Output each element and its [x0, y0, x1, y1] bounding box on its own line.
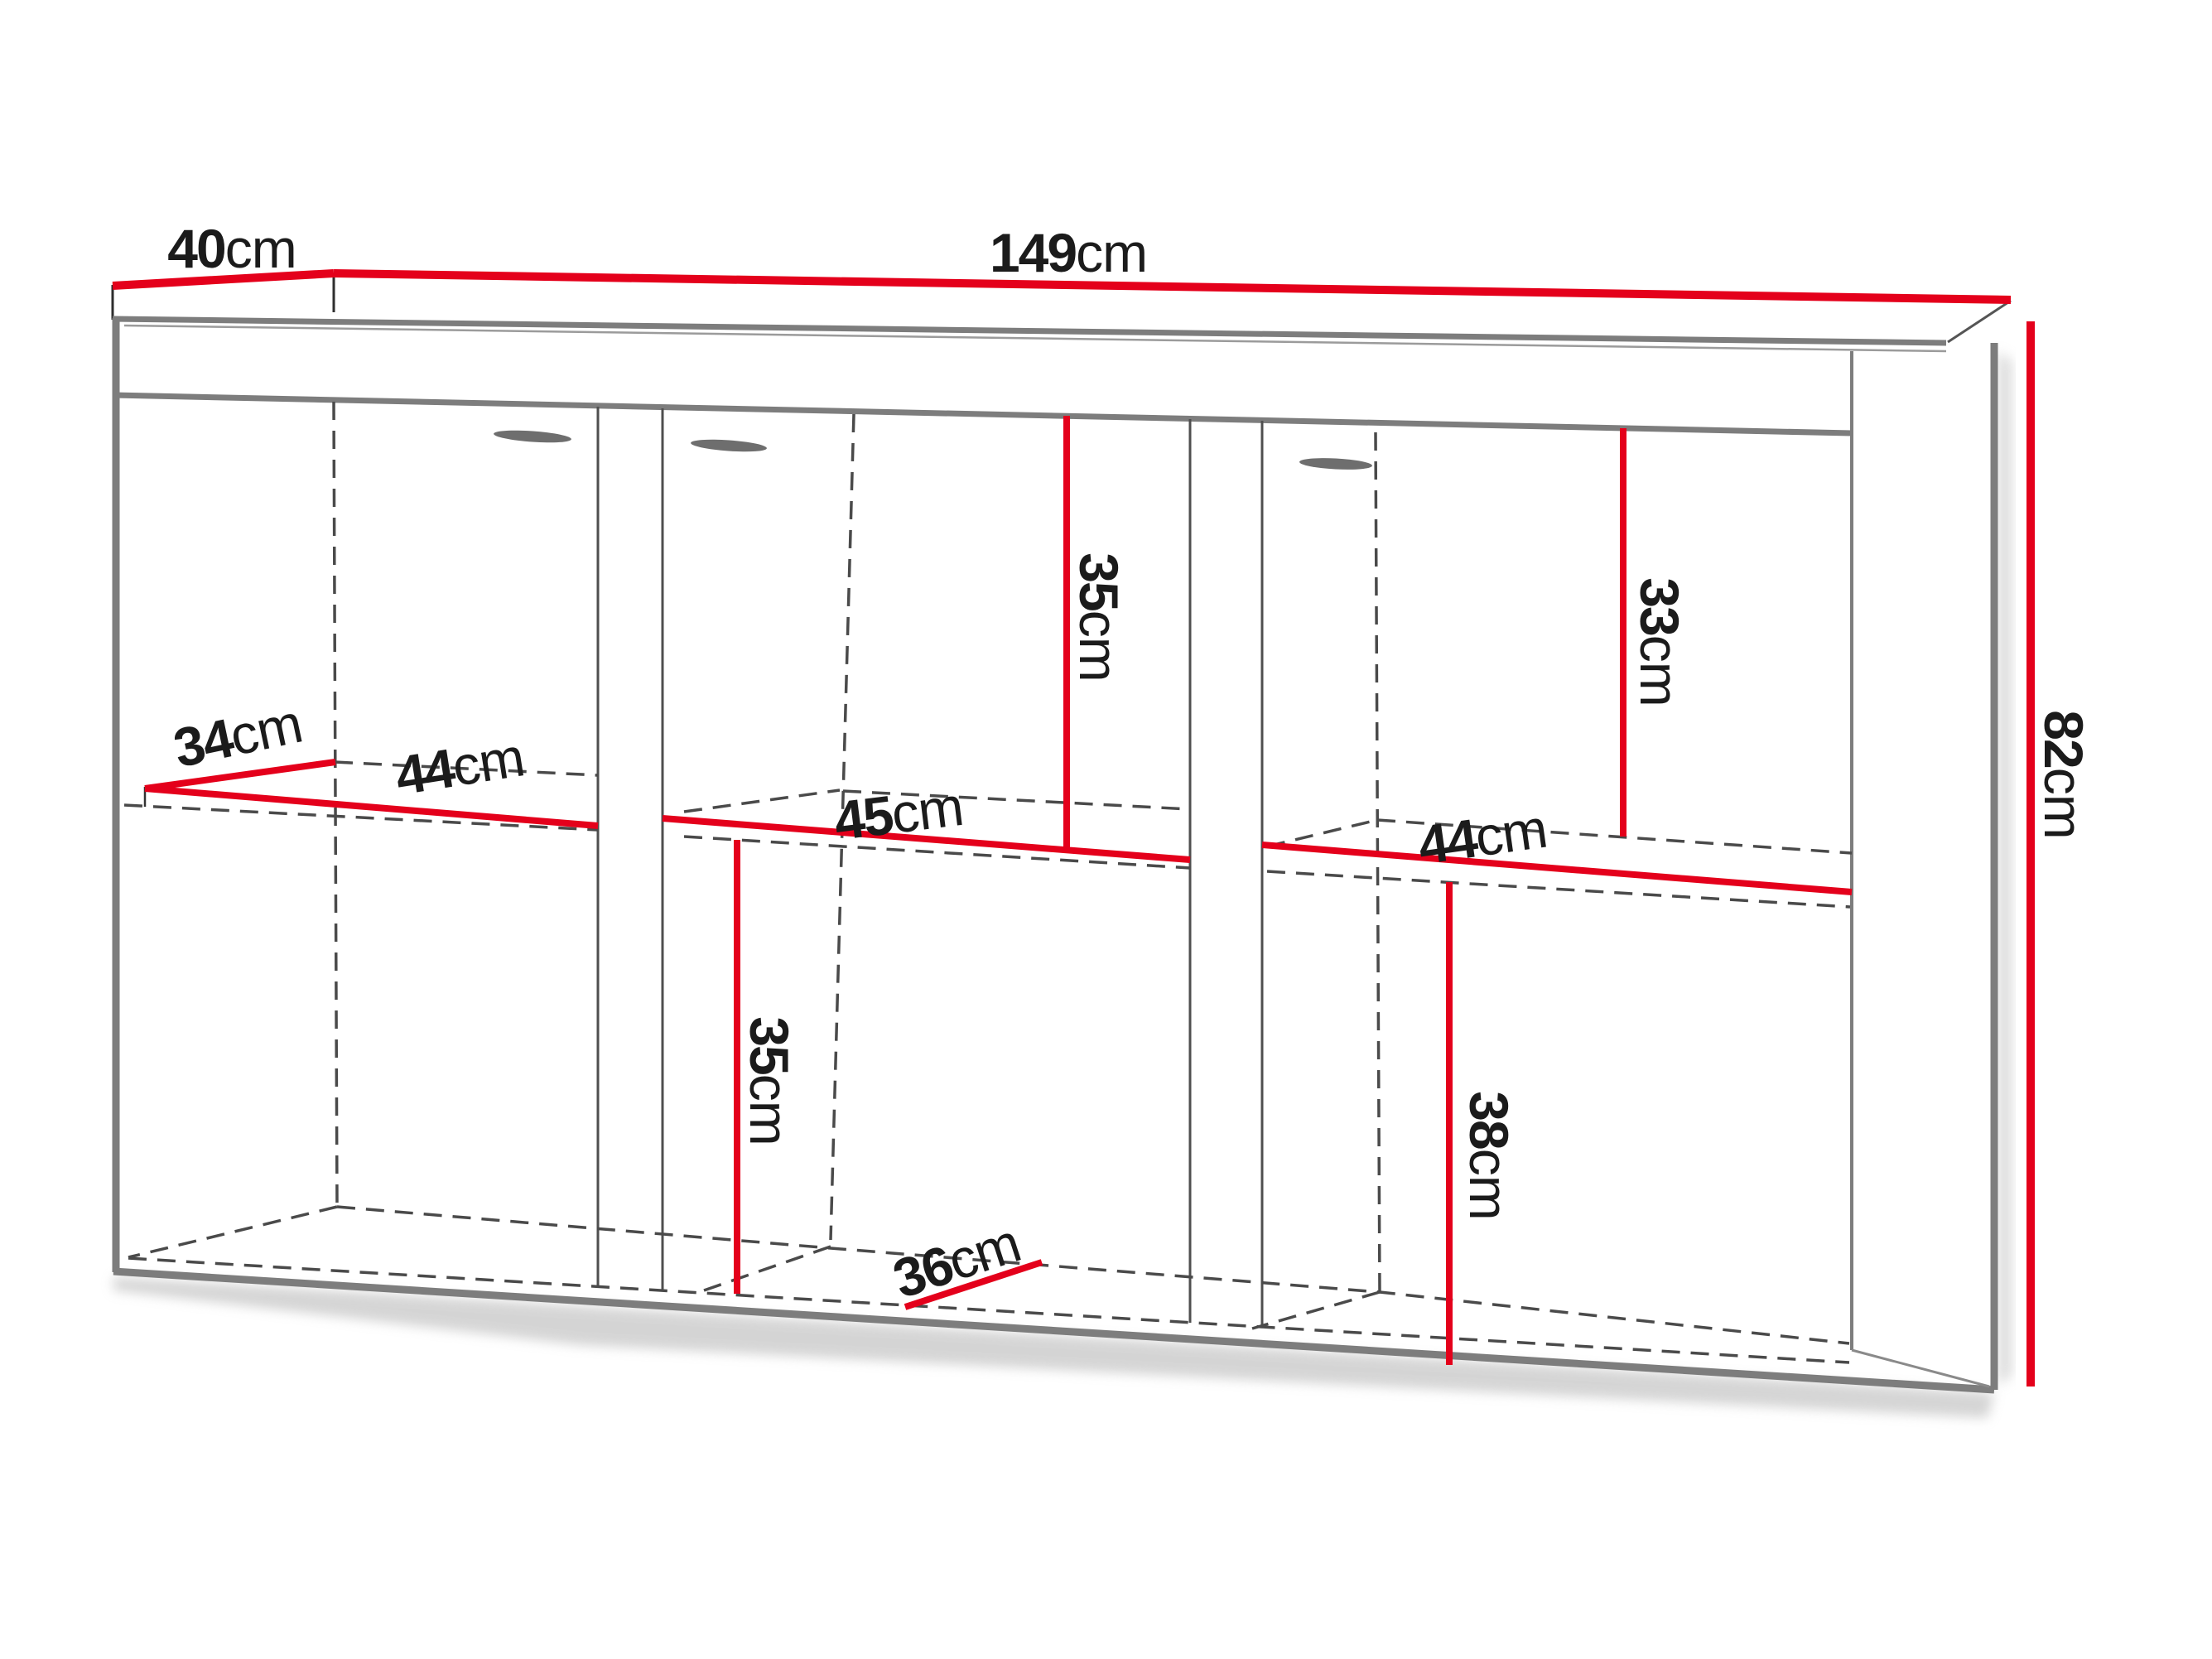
- dim-label-total-height: 82cm: [2033, 710, 2094, 838]
- dim-line-width-right: [1262, 845, 1852, 892]
- shelf-right-front-edge: [1267, 871, 1850, 907]
- dim-line-total-width: [334, 273, 2011, 300]
- diagram-canvas: 40cm 149cm 82cm 34cm 44cm 45cm 35cm 35cm…: [0, 0, 2212, 1659]
- dim-label-total-width: 149cm: [990, 222, 1147, 283]
- bottom-edge: [113, 1271, 1994, 1390]
- cabinet-structure: [113, 274, 2011, 1390]
- floor-side-left: [128, 1207, 337, 1257]
- carcass-top-edge: [113, 395, 1852, 433]
- floor-side-middle: [704, 1247, 831, 1290]
- measurement-lines: [113, 273, 2031, 1387]
- right-side-shadow: [1998, 351, 2012, 1387]
- dim-label-floor-depth-middle: 36cm: [886, 1212, 1028, 1309]
- floor-shadow: [113, 1277, 1994, 1418]
- door-handle-middle-icon: [691, 437, 768, 453]
- dim-label-height-middle-upper: 35cm: [1068, 552, 1130, 681]
- floor-side-right: [1252, 1292, 1380, 1329]
- dim-label-width-left: 44cm: [391, 726, 528, 806]
- door-handle-right-icon: [1299, 456, 1373, 471]
- shelf-right-side-edge: [1267, 820, 1377, 846]
- back-corner-right: [1376, 432, 1380, 1295]
- top-panel-right-edge: [1948, 301, 2011, 342]
- shelf-middle-side-edge: [684, 790, 840, 812]
- sideboard-dimension-diagram: 40cm 149cm 82cm 34cm 44cm 45cm 35cm 35cm…: [0, 0, 2212, 1659]
- dim-line-width-left: [145, 789, 598, 826]
- dim-label-height-middle-lower: 35cm: [739, 1016, 800, 1145]
- dim-label-height-right-lower: 38cm: [1458, 1091, 1520, 1219]
- measurement-labels: 40cm 149cm 82cm 34cm 44cm 45cm 35cm 35cm…: [167, 218, 2094, 1309]
- dim-label-height-right-upper: 33cm: [1629, 577, 1690, 706]
- door-handle-left-icon: [494, 428, 572, 445]
- dim-label-top-depth: 40cm: [167, 218, 296, 279]
